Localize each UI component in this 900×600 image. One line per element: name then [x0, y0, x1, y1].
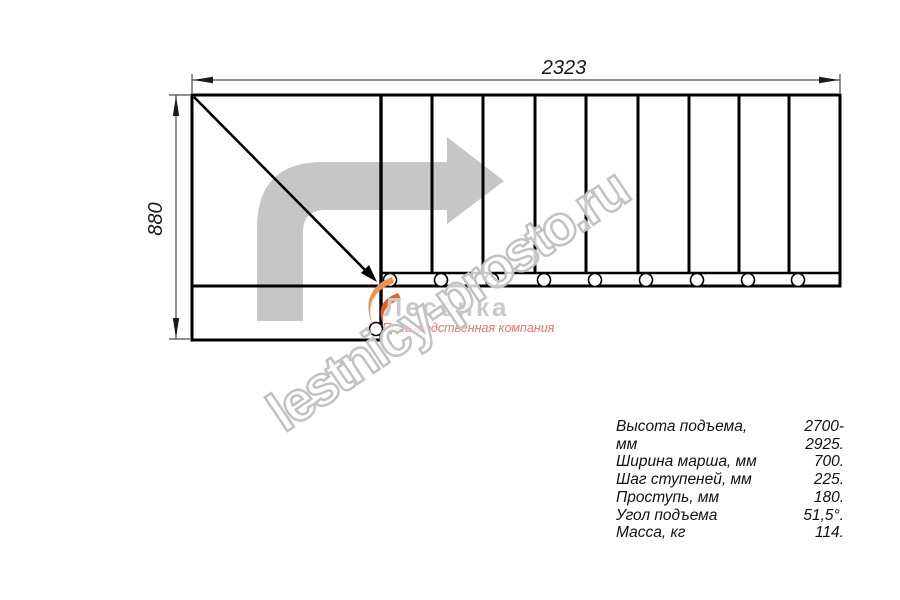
spec-row-step-pitch: Шаг ступеней, мм 225. [616, 471, 844, 489]
spec-row-flight-width: Ширина марша, мм 700. [616, 453, 844, 471]
spec-value: 180. [814, 489, 844, 507]
spec-value: 700. [814, 453, 844, 471]
spec-value: 225. [814, 471, 844, 489]
spec-table: Высота подъема, мм 2700-2925. Ширина мар… [616, 418, 844, 542]
spec-row-angle: Угол подъема 51,5°. [616, 507, 844, 525]
dim-height-arrow-top [173, 96, 179, 116]
spec-value: 51,5°. [803, 507, 844, 525]
spec-label: Проступь, мм [616, 489, 719, 507]
baluster-circle [792, 274, 805, 287]
dim-height-arrow-bottom [173, 318, 179, 338]
company-logo: Лесенка Производственная компания [352, 272, 582, 342]
spec-label: Шаг ступеней, мм [616, 471, 752, 489]
spec-row-tread: Проступь, мм 180. [616, 489, 844, 507]
baluster-circle [640, 274, 653, 287]
spec-label: Высота подъема, мм [616, 418, 768, 453]
baluster-circle [742, 274, 755, 287]
dim-width-arrow-right [819, 77, 839, 83]
spec-value: 2700-2925. [768, 418, 844, 453]
spec-row-height: Высота подъема, мм 2700-2925. [616, 418, 844, 453]
dimension-height [169, 95, 190, 339]
spec-label: Масса, кг [616, 524, 685, 542]
dim-width-arrow-left [193, 77, 213, 83]
spec-label: Ширина марша, мм [616, 453, 757, 471]
dimension-height-label: 880 [145, 202, 167, 235]
baluster-circle [589, 274, 602, 287]
logo-tagline: Производственная компания [382, 321, 554, 335]
spec-value: 114. [815, 524, 844, 542]
spec-label: Угол подъема [616, 507, 717, 525]
spec-row-mass: Масса, кг 114. [616, 524, 844, 542]
dimension-width-label: 2323 [541, 57, 587, 79]
logo-company-name: Лесенка [384, 292, 509, 323]
baluster-circle [691, 274, 704, 287]
dimension-width [192, 74, 840, 93]
